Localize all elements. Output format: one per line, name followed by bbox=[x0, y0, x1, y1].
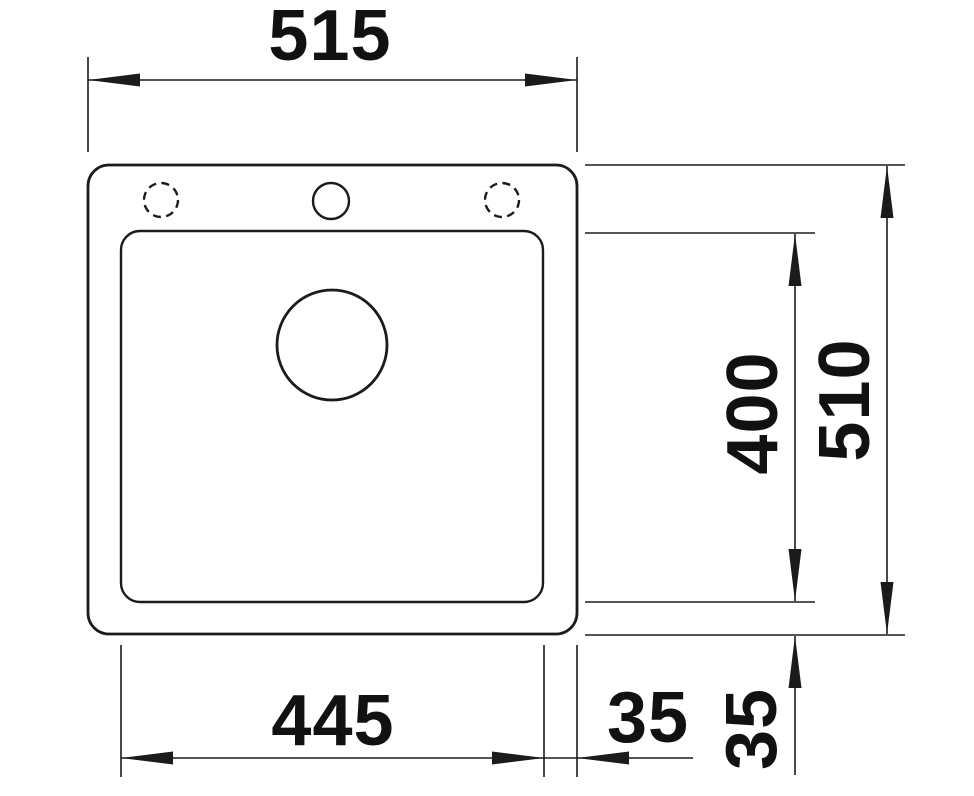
drawing-svg: 515 510 400 35 445 35 bbox=[0, 0, 974, 796]
dim-label-445: 445 bbox=[271, 681, 394, 761]
arrowhead-35-vertical-icon bbox=[789, 636, 802, 688]
arrowhead-400-top-icon bbox=[789, 234, 802, 286]
dim-label-400: 400 bbox=[713, 351, 793, 474]
arrowhead-515-right-icon bbox=[525, 74, 577, 87]
arrowhead-510-top-icon bbox=[881, 166, 894, 218]
sink-dimension-drawing: 515 510 400 35 445 35 bbox=[0, 0, 974, 796]
arrowhead-515-left-icon bbox=[88, 74, 140, 87]
arrowhead-510-bottom-icon bbox=[881, 582, 894, 634]
arrowhead-445-right-icon bbox=[492, 752, 544, 765]
dim-label-35-horizontal: 35 bbox=[607, 678, 689, 758]
dim-label-510: 510 bbox=[805, 338, 885, 461]
arrowhead-400-bottom-icon bbox=[789, 549, 802, 601]
drain-circle bbox=[277, 290, 387, 400]
tap-hole-left-icon bbox=[144, 183, 178, 217]
sink-basin-outline bbox=[121, 231, 543, 602]
tap-hole-center-icon bbox=[313, 183, 349, 219]
tap-hole-right-icon bbox=[485, 183, 519, 217]
dim-label-515: 515 bbox=[268, 0, 391, 76]
arrowhead-445-left-icon bbox=[121, 752, 173, 765]
dim-label-35-vertical: 35 bbox=[712, 688, 792, 770]
